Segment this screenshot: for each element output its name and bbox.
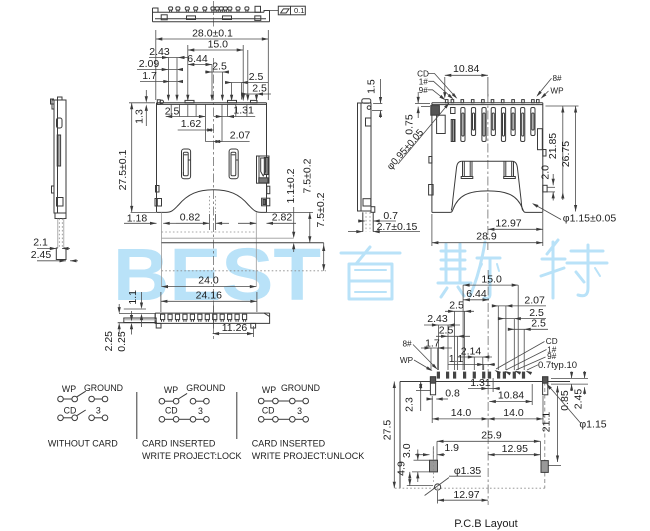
svg-text:1.31: 1.31 xyxy=(470,377,491,389)
svg-text:1.1: 1.1 xyxy=(127,290,139,305)
svg-text:3: 3 xyxy=(198,406,203,416)
svg-text:26.75: 26.75 xyxy=(560,141,572,167)
svg-text:2.0: 2.0 xyxy=(540,165,552,180)
svg-text:0.1: 0.1 xyxy=(294,6,304,15)
svg-text:2.1: 2.1 xyxy=(33,237,48,249)
svg-text:2.07: 2.07 xyxy=(524,294,545,306)
svg-text:1.7: 1.7 xyxy=(142,70,157,82)
svg-text:3: 3 xyxy=(96,406,101,416)
svg-text:GROUND: GROUND xyxy=(84,383,123,393)
svg-text:28.9: 28.9 xyxy=(476,231,497,243)
svg-text:9#: 9# xyxy=(419,86,429,95)
svg-text:0.25: 0.25 xyxy=(116,331,128,352)
svg-text:1.1±0.2: 1.1±0.2 xyxy=(285,168,297,203)
svg-text:2.09: 2.09 xyxy=(139,58,160,70)
svg-text:WP: WP xyxy=(164,385,178,395)
svg-text:8#: 8# xyxy=(402,340,412,349)
svg-text:WP: WP xyxy=(62,384,76,394)
svg-text:1.62: 1.62 xyxy=(181,118,202,130)
svg-text:2.7±0.15: 2.7±0.15 xyxy=(377,221,418,233)
svg-text:GROUND: GROUND xyxy=(186,383,225,393)
svg-text:2.3: 2.3 xyxy=(404,397,416,412)
svg-text:27.5±0.1: 27.5±0.1 xyxy=(117,149,129,190)
svg-text:21.85: 21.85 xyxy=(547,133,559,159)
svg-text:12.97: 12.97 xyxy=(453,489,479,501)
svg-text:21.1: 21.1 xyxy=(541,412,553,433)
svg-text:1.3: 1.3 xyxy=(134,109,146,124)
svg-text:10.84: 10.84 xyxy=(453,63,479,75)
svg-text:WP: WP xyxy=(400,356,414,365)
svg-text:φ1.15±0.05: φ1.15±0.05 xyxy=(563,213,617,225)
svg-text:1.1: 1.1 xyxy=(449,353,464,365)
svg-text:4.9: 4.9 xyxy=(395,461,407,476)
svg-text:25.9: 25.9 xyxy=(481,430,502,442)
svg-text:6.44: 6.44 xyxy=(187,53,208,65)
svg-text:7.5±0.2: 7.5±0.2 xyxy=(301,158,313,193)
svg-text:1.7: 1.7 xyxy=(425,338,440,350)
svg-text:2.25: 2.25 xyxy=(103,331,115,352)
svg-text:WP: WP xyxy=(550,87,564,96)
svg-text:11.26: 11.26 xyxy=(222,322,248,334)
svg-text:2.45: 2.45 xyxy=(573,389,585,410)
svg-text:14.0: 14.0 xyxy=(451,407,472,419)
svg-text:2.5: 2.5 xyxy=(439,324,454,336)
svg-text:1.18: 1.18 xyxy=(127,213,148,225)
svg-text:3.0: 3.0 xyxy=(401,443,413,458)
svg-text:2.5: 2.5 xyxy=(252,82,267,94)
svg-text:GROUND: GROUND xyxy=(281,383,320,393)
svg-text:27.5: 27.5 xyxy=(382,420,394,441)
svg-text:24.16: 24.16 xyxy=(196,289,222,301)
svg-text:7.5±0.2: 7.5±0.2 xyxy=(315,192,327,227)
svg-text:2.43: 2.43 xyxy=(427,313,448,325)
svg-text:CARD INSERTED: CARD INSERTED xyxy=(142,439,216,449)
svg-text:12.97: 12.97 xyxy=(495,217,521,229)
svg-text:2.5: 2.5 xyxy=(249,71,264,83)
svg-text:8#: 8# xyxy=(552,74,562,83)
svg-text:12.95: 12.95 xyxy=(502,443,528,455)
svg-text:10.84: 10.84 xyxy=(498,390,524,402)
svg-text:φ1.15: φ1.15 xyxy=(579,419,606,431)
svg-text:P.C.B Layout: P.C.B Layout xyxy=(454,518,517,530)
svg-text:1.5: 1.5 xyxy=(366,79,378,94)
svg-text:2.43: 2.43 xyxy=(149,46,170,58)
svg-text:CARD INSERTED: CARD INSERTED xyxy=(252,439,326,449)
svg-text:0.82: 0.82 xyxy=(180,212,201,224)
svg-text:WITHOUT CARD: WITHOUT CARD xyxy=(48,439,118,449)
svg-text:WP: WP xyxy=(262,385,276,395)
svg-text:2.5: 2.5 xyxy=(531,318,546,330)
svg-text:2.45: 2.45 xyxy=(31,249,52,261)
svg-text:2.07: 2.07 xyxy=(230,130,251,142)
svg-text:15.0: 15.0 xyxy=(481,273,502,285)
svg-text:28.0±0.1: 28.0±0.1 xyxy=(192,27,233,39)
svg-text:WRITE PROJECT:LOCK: WRITE PROJECT:LOCK xyxy=(142,451,242,461)
svg-text:2.5: 2.5 xyxy=(449,300,464,312)
svg-text:0.8: 0.8 xyxy=(445,388,460,400)
svg-text:15.0: 15.0 xyxy=(208,39,229,51)
svg-text:CD: CD xyxy=(64,406,77,416)
svg-text:0.7typ.10: 0.7typ.10 xyxy=(538,360,577,371)
svg-text:1.9: 1.9 xyxy=(444,442,459,454)
svg-text:1.31: 1.31 xyxy=(233,104,254,116)
svg-text:24.0: 24.0 xyxy=(198,275,219,287)
svg-text:2.5: 2.5 xyxy=(212,60,227,72)
svg-text:2.82: 2.82 xyxy=(272,212,293,224)
svg-text:3: 3 xyxy=(297,406,302,416)
svg-text:2.14: 2.14 xyxy=(461,346,482,358)
svg-text:6.44: 6.44 xyxy=(466,288,487,300)
svg-text:CD: CD xyxy=(262,406,275,416)
svg-text:CD: CD xyxy=(165,406,178,416)
svg-text:2.5: 2.5 xyxy=(165,105,180,117)
svg-text:14.0: 14.0 xyxy=(503,407,524,419)
svg-text:WRITE PROJECT:UNLOCK: WRITE PROJECT:UNLOCK xyxy=(252,451,365,461)
svg-text:φ1.35: φ1.35 xyxy=(454,465,481,477)
